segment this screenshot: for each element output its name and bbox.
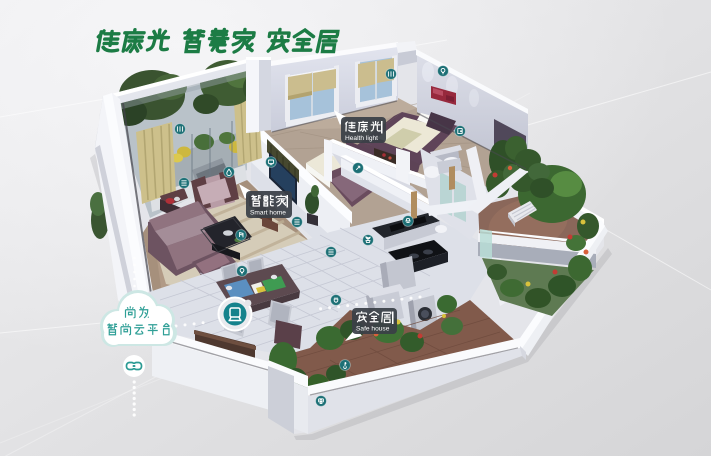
svg-text:Safe house: Safe house (356, 326, 390, 333)
svg-text:Smart home: Smart home (250, 210, 286, 217)
svg-text:Health light: Health light (345, 135, 378, 142)
